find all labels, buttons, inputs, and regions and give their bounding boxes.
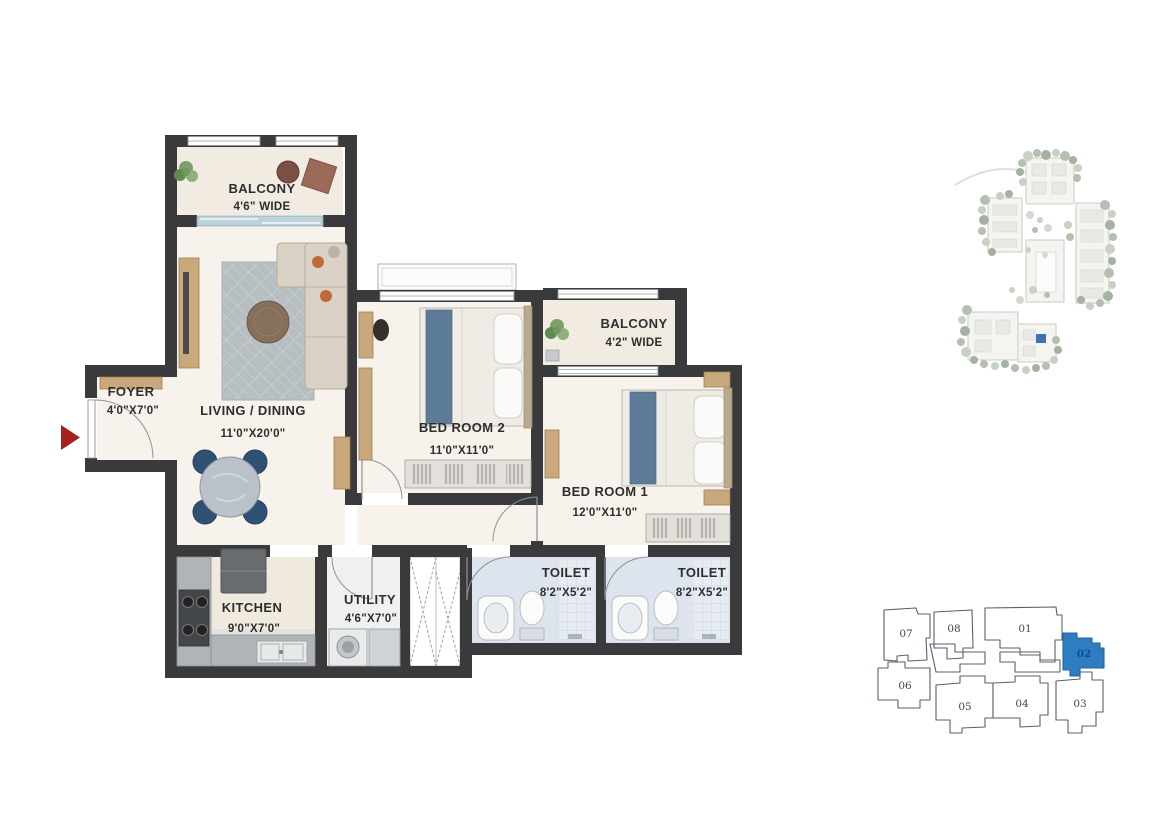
balcony-2-ac-unit	[546, 350, 559, 361]
bed-1-side-table-bottom	[704, 490, 730, 505]
room-dim-toilet-1: 8'2"X5'2"	[540, 587, 592, 599]
stove	[179, 590, 209, 646]
key-plan-label-03: 03	[1073, 698, 1086, 710]
room-dim-balcony-1: 4'6" WIDE	[234, 201, 291, 213]
bed-2	[420, 306, 532, 428]
utility-counter	[369, 629, 400, 666]
sofa-pillow-gray	[328, 246, 340, 258]
floor-plan-page: BALCONY 4'6" WIDE LIVING / DINING 11'0"X…	[0, 0, 1170, 830]
key-plan-label-06: 06	[898, 680, 912, 692]
shower-drain	[702, 634, 716, 639]
dining-set	[193, 450, 267, 524]
room-label-bedroom-2: BED ROOM 2	[419, 420, 505, 435]
living-balcony-sliding-door	[197, 216, 323, 226]
site-block-southwest	[968, 312, 1018, 360]
kitchen-sink	[257, 641, 307, 663]
bedroom-1-dresser	[545, 430, 559, 478]
room-label-bedroom-1: BED ROOM 1	[562, 484, 648, 499]
site-central-court	[1036, 252, 1056, 292]
key-plan-label-08: 08	[947, 623, 960, 635]
entrance-door-leaf	[88, 400, 95, 458]
room-dim-utility: 4'6"X7'0"	[345, 613, 397, 625]
bed-1	[622, 388, 732, 488]
plan-canvas: BALCONY 4'6" WIDE LIVING / DINING 11'0"X…	[0, 0, 1170, 830]
room-label-utility: UTILITY	[344, 592, 396, 607]
bed-1-side-table-top	[704, 372, 730, 387]
key-plan: 07 08 01 02 06 05 04 03	[878, 607, 1104, 733]
bedroom-2-wardrobe	[405, 460, 531, 488]
bedroom-2-desk	[359, 312, 373, 358]
shower-drain	[568, 634, 582, 639]
key-plan-label-05: 05	[958, 701, 971, 713]
tv-panel	[183, 272, 189, 354]
key-plan-label-04: 04	[1015, 698, 1029, 710]
wc-bowl	[654, 591, 678, 625]
dining-table	[200, 457, 260, 517]
bedroom-2-chair	[373, 319, 389, 341]
sofa-pillow-orange-2	[320, 290, 332, 302]
site-map	[955, 149, 1117, 374]
room-label-balcony-1: BALCONY	[228, 181, 295, 196]
room-dim-bedroom-1: 12'0"X11'0"	[572, 507, 637, 519]
balcony-1-table	[277, 161, 299, 183]
room-label-balcony-2: BALCONY	[600, 316, 667, 331]
bedroom-2-dresser	[359, 368, 372, 460]
key-plan-label-01: 01	[1018, 623, 1031, 635]
room-label-kitchen: KITCHEN	[222, 600, 283, 615]
room-label-toilet-2: TOILET	[678, 565, 726, 580]
room-label-toilet-1: TOILET	[542, 565, 590, 580]
entry-arrow	[61, 425, 80, 450]
washing-machine	[329, 629, 367, 666]
bed-2-headboard	[524, 306, 532, 428]
room-dim-toilet-2: 8'2"X5'2"	[676, 587, 728, 599]
wc-tank	[654, 628, 678, 640]
room-dim-balcony-2: 4'2" WIDE	[606, 337, 663, 349]
wc-tank	[520, 628, 544, 640]
key-plan-label-02: 02	[1077, 648, 1092, 660]
sofa-pillow-orange-1	[312, 256, 324, 268]
apartment-floor-plan: BALCONY 4'6" WIDE LIVING / DINING 11'0"X…	[61, 135, 742, 678]
site-map-marker	[1036, 334, 1046, 343]
room-dim-bedroom-2: 11'0"X11'0"	[430, 445, 494, 457]
bed-1-headboard	[724, 388, 732, 488]
room-dim-foyer: 4'0"X7'0"	[107, 405, 159, 417]
bedroom-1-wardrobe	[646, 514, 730, 542]
room-label-living: LIVING / DINING	[200, 403, 306, 418]
room-label-foyer: FOYER	[108, 384, 155, 399]
bedroom-1-balcony-window	[558, 367, 658, 376]
key-plan-label-07: 07	[899, 628, 912, 640]
room-dim-kitchen: 9'0"X7'0"	[228, 623, 280, 635]
room-dim-living: 11'0"X20'0"	[220, 428, 285, 440]
coffee-table	[247, 301, 289, 343]
living-sideboard	[334, 437, 350, 489]
shaft-floor	[410, 557, 460, 666]
